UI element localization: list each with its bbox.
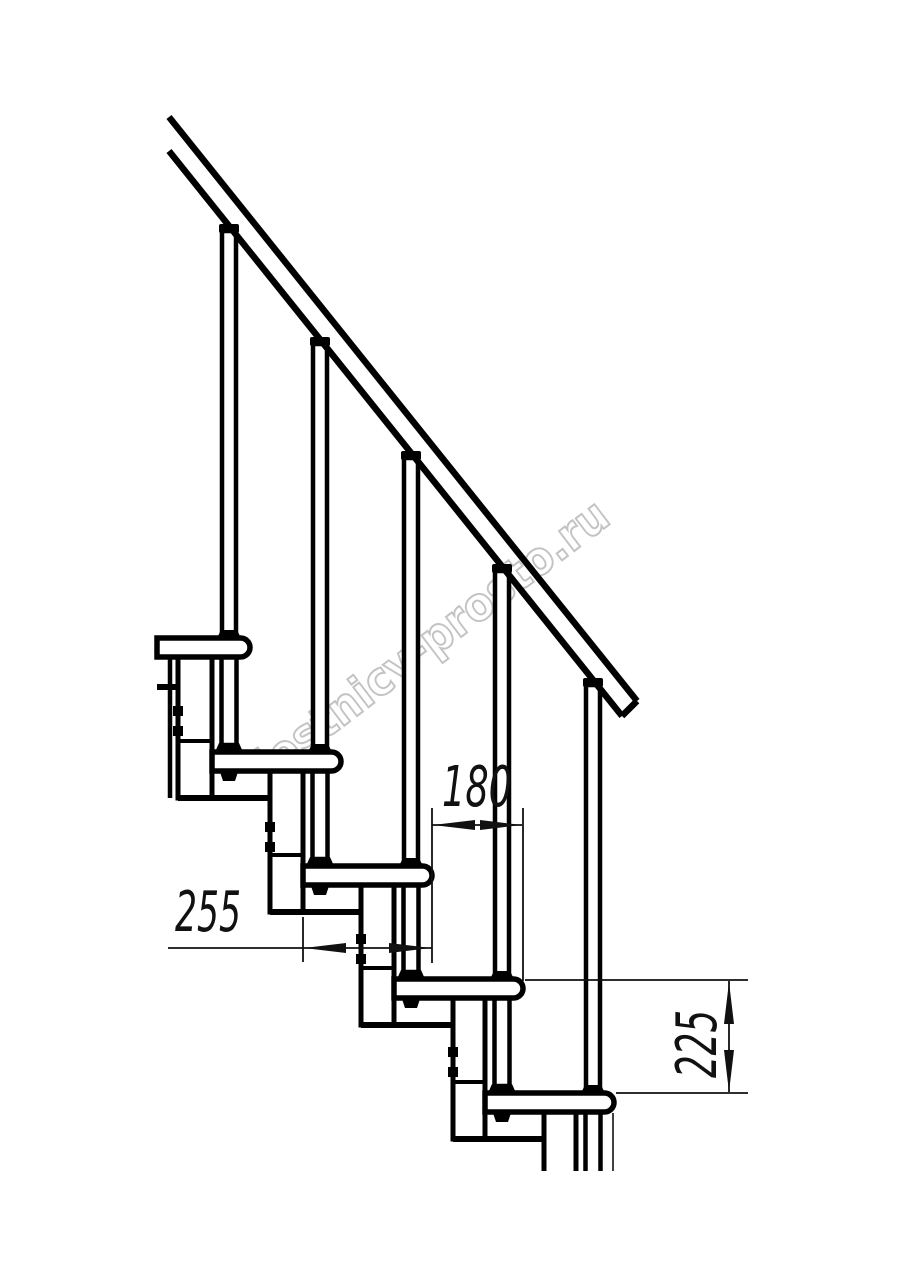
nut <box>402 999 420 1008</box>
dimension-225: 225 <box>525 980 748 1093</box>
dim-255-label: 255 <box>175 880 241 945</box>
baluster-1 <box>222 231 236 638</box>
baluster-3-foot <box>399 858 423 866</box>
bolt <box>448 1047 458 1057</box>
nut <box>493 1113 511 1122</box>
bolt <box>265 822 275 832</box>
staircase-drawing-page: lestnicy-prosto.ru <box>0 0 914 1280</box>
baluster-1-foot <box>217 630 241 638</box>
bolt <box>356 954 366 964</box>
nut <box>311 886 329 895</box>
tread-5 <box>485 1093 614 1112</box>
dim-180-label: 180 <box>442 755 512 820</box>
baluster-3 <box>404 458 418 866</box>
dim-255-arrow-left <box>304 943 346 953</box>
tread-4 <box>394 979 523 998</box>
baluster-4-foot <box>490 971 514 979</box>
baluster-2-foot <box>308 744 332 752</box>
baluster-2 <box>313 344 327 752</box>
tread-1 <box>157 638 250 657</box>
tread-2 <box>212 752 341 771</box>
bolt <box>356 934 366 944</box>
tread-3 <box>303 866 432 885</box>
rod-3 <box>404 883 419 972</box>
bolt <box>173 726 183 736</box>
baluster-5-foot <box>581 1085 605 1093</box>
baluster-5 <box>586 685 600 1093</box>
dim-180-arrow-left <box>433 820 475 830</box>
module-2-plate <box>270 771 303 912</box>
handrail-end-cap <box>622 701 637 716</box>
module-1-plate <box>178 657 212 798</box>
bolt <box>173 706 183 716</box>
bolt <box>265 842 275 852</box>
bolt <box>448 1067 458 1077</box>
nut <box>220 772 238 781</box>
rod-2 <box>313 769 328 859</box>
staircase-technical-drawing: lestnicy-prosto.ru <box>0 0 914 1280</box>
dim-225-label: 225 <box>665 1010 730 1078</box>
rod-1 <box>222 655 237 745</box>
rod-4 <box>495 996 510 1086</box>
